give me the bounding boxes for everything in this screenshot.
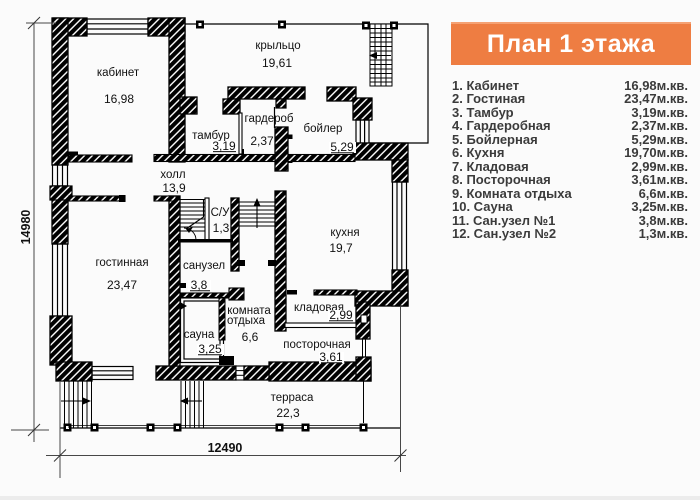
- svg-text:сауна: сауна: [184, 329, 215, 341]
- svg-text:отдыха: отдыха: [227, 315, 266, 327]
- svg-text:2,99: 2,99: [329, 308, 353, 322]
- svg-text:22,3: 22,3: [276, 406, 300, 420]
- svg-text:3,19: 3,19: [212, 139, 236, 153]
- svg-text:3,61: 3,61: [319, 350, 343, 364]
- svg-text:крыльцо: крыльцо: [255, 40, 300, 52]
- svg-text:19,61: 19,61: [262, 56, 292, 70]
- svg-text:16,98: 16,98: [104, 92, 134, 106]
- svg-text:19,7: 19,7: [329, 241, 353, 255]
- svg-text:гостинная: гостинная: [95, 257, 148, 269]
- svg-text:13,9: 13,9: [162, 181, 186, 195]
- svg-text:3,8: 3,8: [191, 278, 208, 292]
- svg-text:6,6: 6,6: [242, 330, 259, 344]
- svg-text:5,29: 5,29: [330, 140, 354, 154]
- svg-text:14980: 14980: [19, 210, 33, 245]
- svg-text:23,47: 23,47: [107, 278, 137, 292]
- svg-text:кабинет: кабинет: [97, 67, 140, 79]
- svg-text:бойлер: бойлер: [304, 123, 343, 135]
- svg-text:3,25: 3,25: [198, 342, 222, 356]
- svg-text:холл: холл: [160, 169, 185, 181]
- svg-text:1,3: 1,3: [213, 221, 230, 235]
- svg-text:санузел: санузел: [183, 260, 225, 272]
- svg-text:12490: 12490: [208, 441, 243, 455]
- svg-text:кухня: кухня: [330, 227, 359, 239]
- svg-text:терраса: терраса: [271, 392, 314, 404]
- svg-text:гардероб: гардероб: [245, 113, 294, 125]
- svg-text:С/У: С/У: [211, 207, 231, 219]
- svg-text:2,37: 2,37: [250, 134, 274, 148]
